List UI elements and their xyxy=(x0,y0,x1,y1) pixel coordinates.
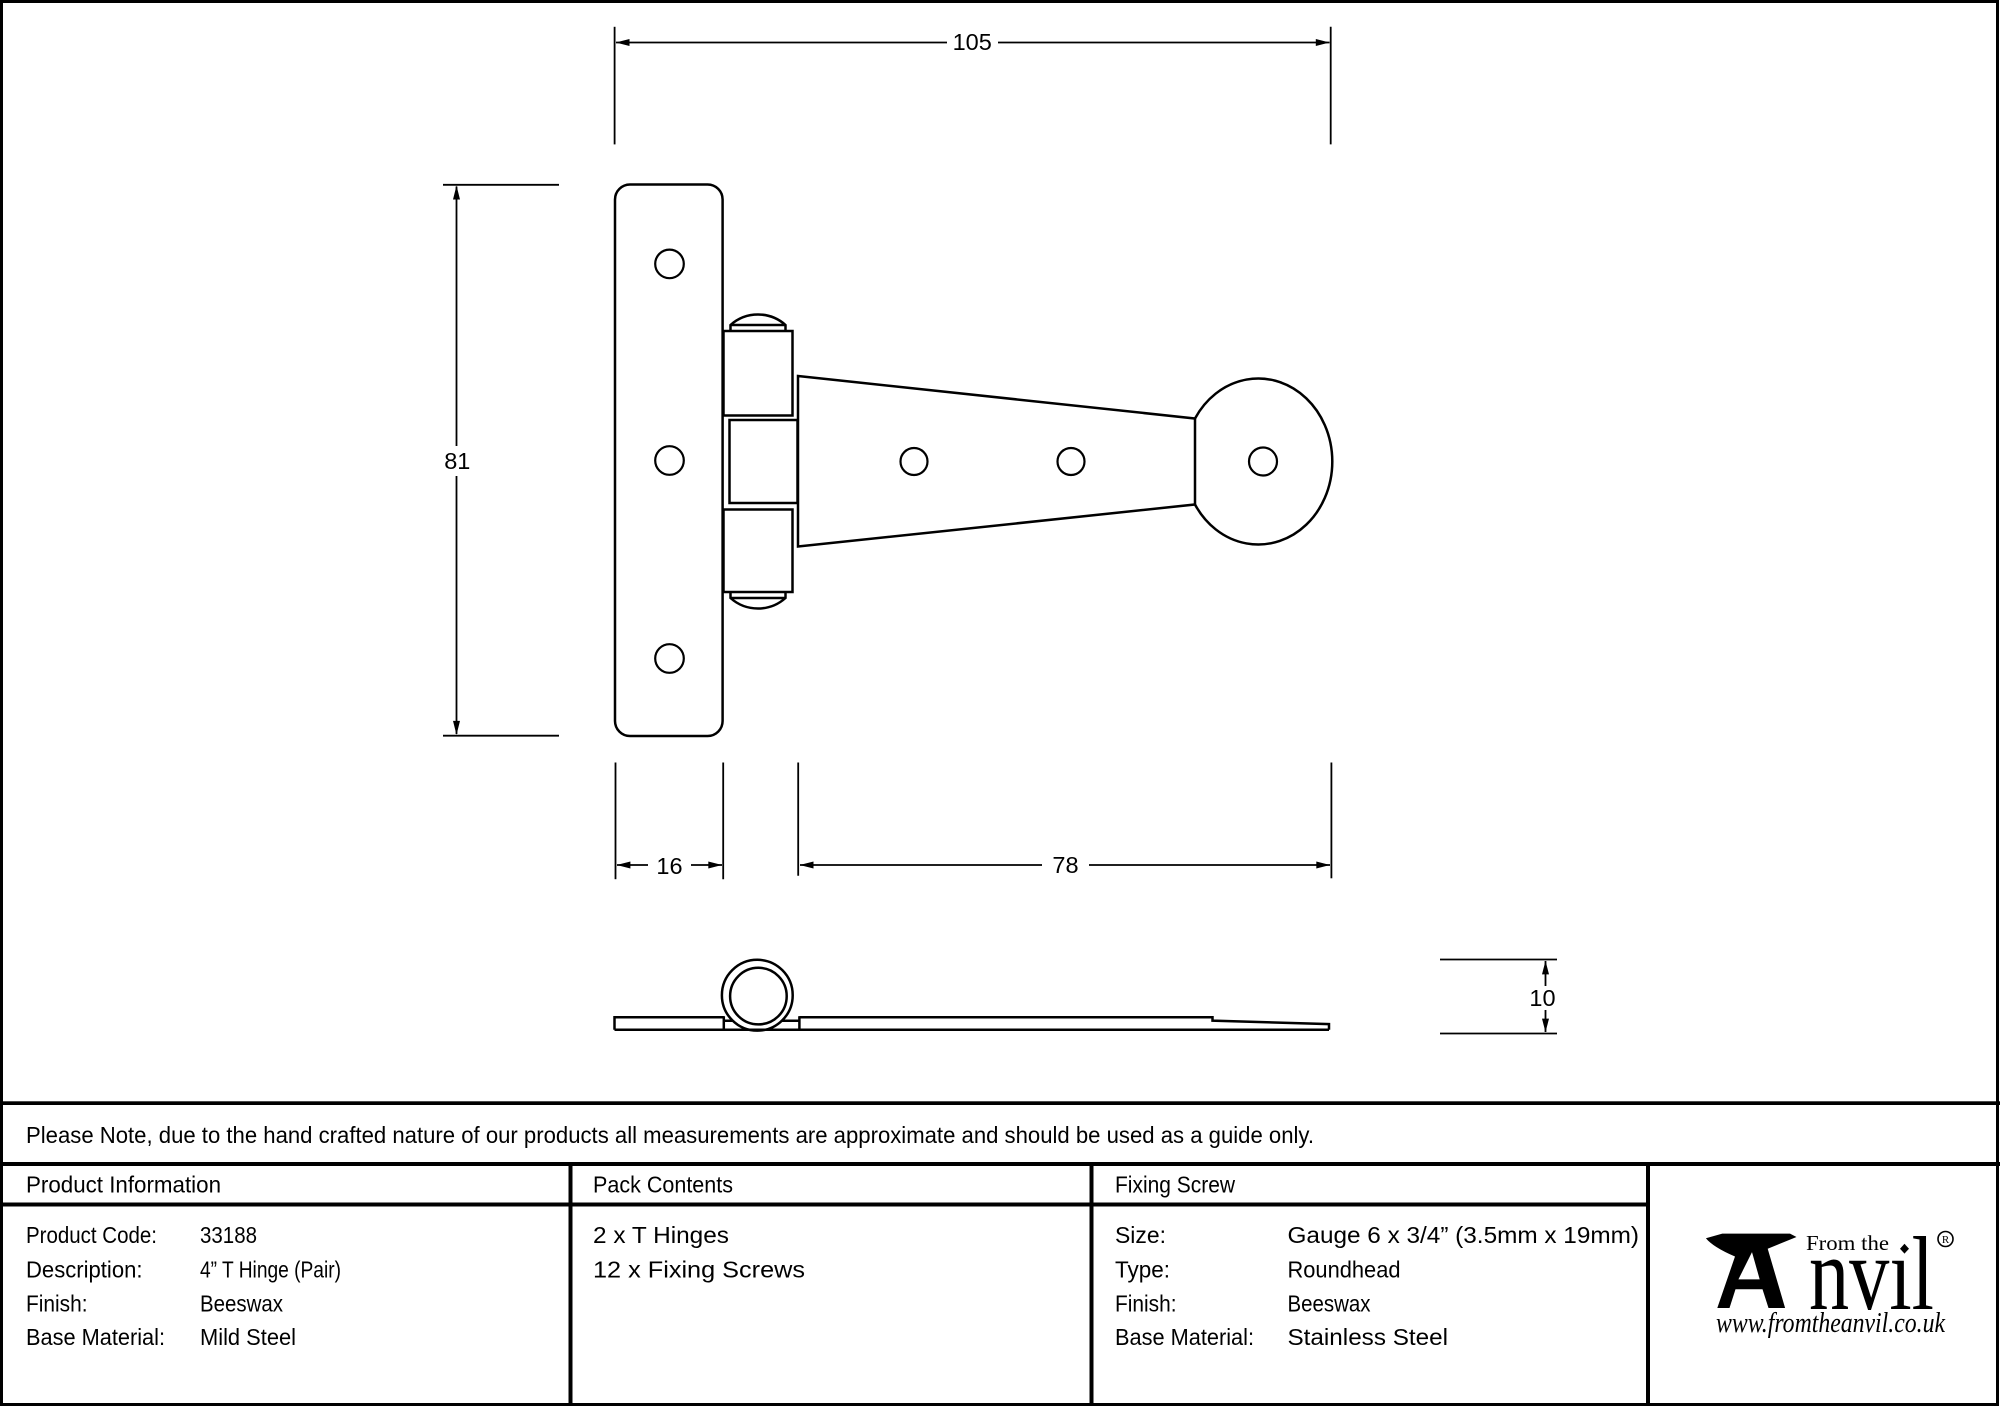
svg-text:Please Note, due to the hand c: Please Note, due to the hand crafted nat… xyxy=(26,1122,1314,1148)
svg-text:Description:: Description: xyxy=(26,1257,143,1283)
svg-text:R: R xyxy=(1942,1234,1950,1246)
svg-text:81: 81 xyxy=(444,448,470,474)
svg-text:Product Code:: Product Code: xyxy=(26,1222,157,1248)
svg-text:Stainless Steel: Stainless Steel xyxy=(1288,1324,1449,1350)
svg-text:Mild Steel: Mild Steel xyxy=(200,1324,296,1350)
svg-text:78: 78 xyxy=(1052,852,1078,878)
svg-text:Type:: Type: xyxy=(1115,1257,1170,1283)
svg-text:Pack Contents: Pack Contents xyxy=(593,1172,733,1198)
svg-text:12 x Fixing Screws: 12 x Fixing Screws xyxy=(593,1257,805,1283)
svg-text:16: 16 xyxy=(656,853,682,879)
svg-text:Beeswax: Beeswax xyxy=(1288,1291,1371,1317)
svg-text:Product Information: Product Information xyxy=(26,1172,221,1198)
svg-text:105: 105 xyxy=(953,29,992,55)
svg-text:Gauge 6 x 3/4” (3.5mm x 19mm): Gauge 6 x 3/4” (3.5mm x 19mm) xyxy=(1288,1222,1640,1248)
svg-text:Fixing Screw: Fixing Screw xyxy=(1115,1172,1236,1198)
svg-text:Finish:: Finish: xyxy=(1115,1291,1177,1317)
svg-text:Finish:: Finish: xyxy=(26,1291,88,1317)
svg-text:4” T Hinge (Pair): 4” T Hinge (Pair) xyxy=(200,1257,341,1283)
svg-text:33188: 33188 xyxy=(200,1222,257,1248)
svg-text:Beeswax: Beeswax xyxy=(200,1291,283,1317)
svg-text:Base Material:: Base Material: xyxy=(26,1324,165,1350)
svg-text:Roundhead: Roundhead xyxy=(1288,1257,1401,1283)
svg-text:www.fromtheanvil.co.uk: www.fromtheanvil.co.uk xyxy=(1716,1308,1945,1339)
svg-text:Size:: Size: xyxy=(1115,1222,1166,1248)
svg-text:Base Material:: Base Material: xyxy=(1115,1324,1254,1350)
svg-text:2 x T Hinges: 2 x T Hinges xyxy=(593,1222,729,1248)
svg-text:10: 10 xyxy=(1529,985,1555,1011)
